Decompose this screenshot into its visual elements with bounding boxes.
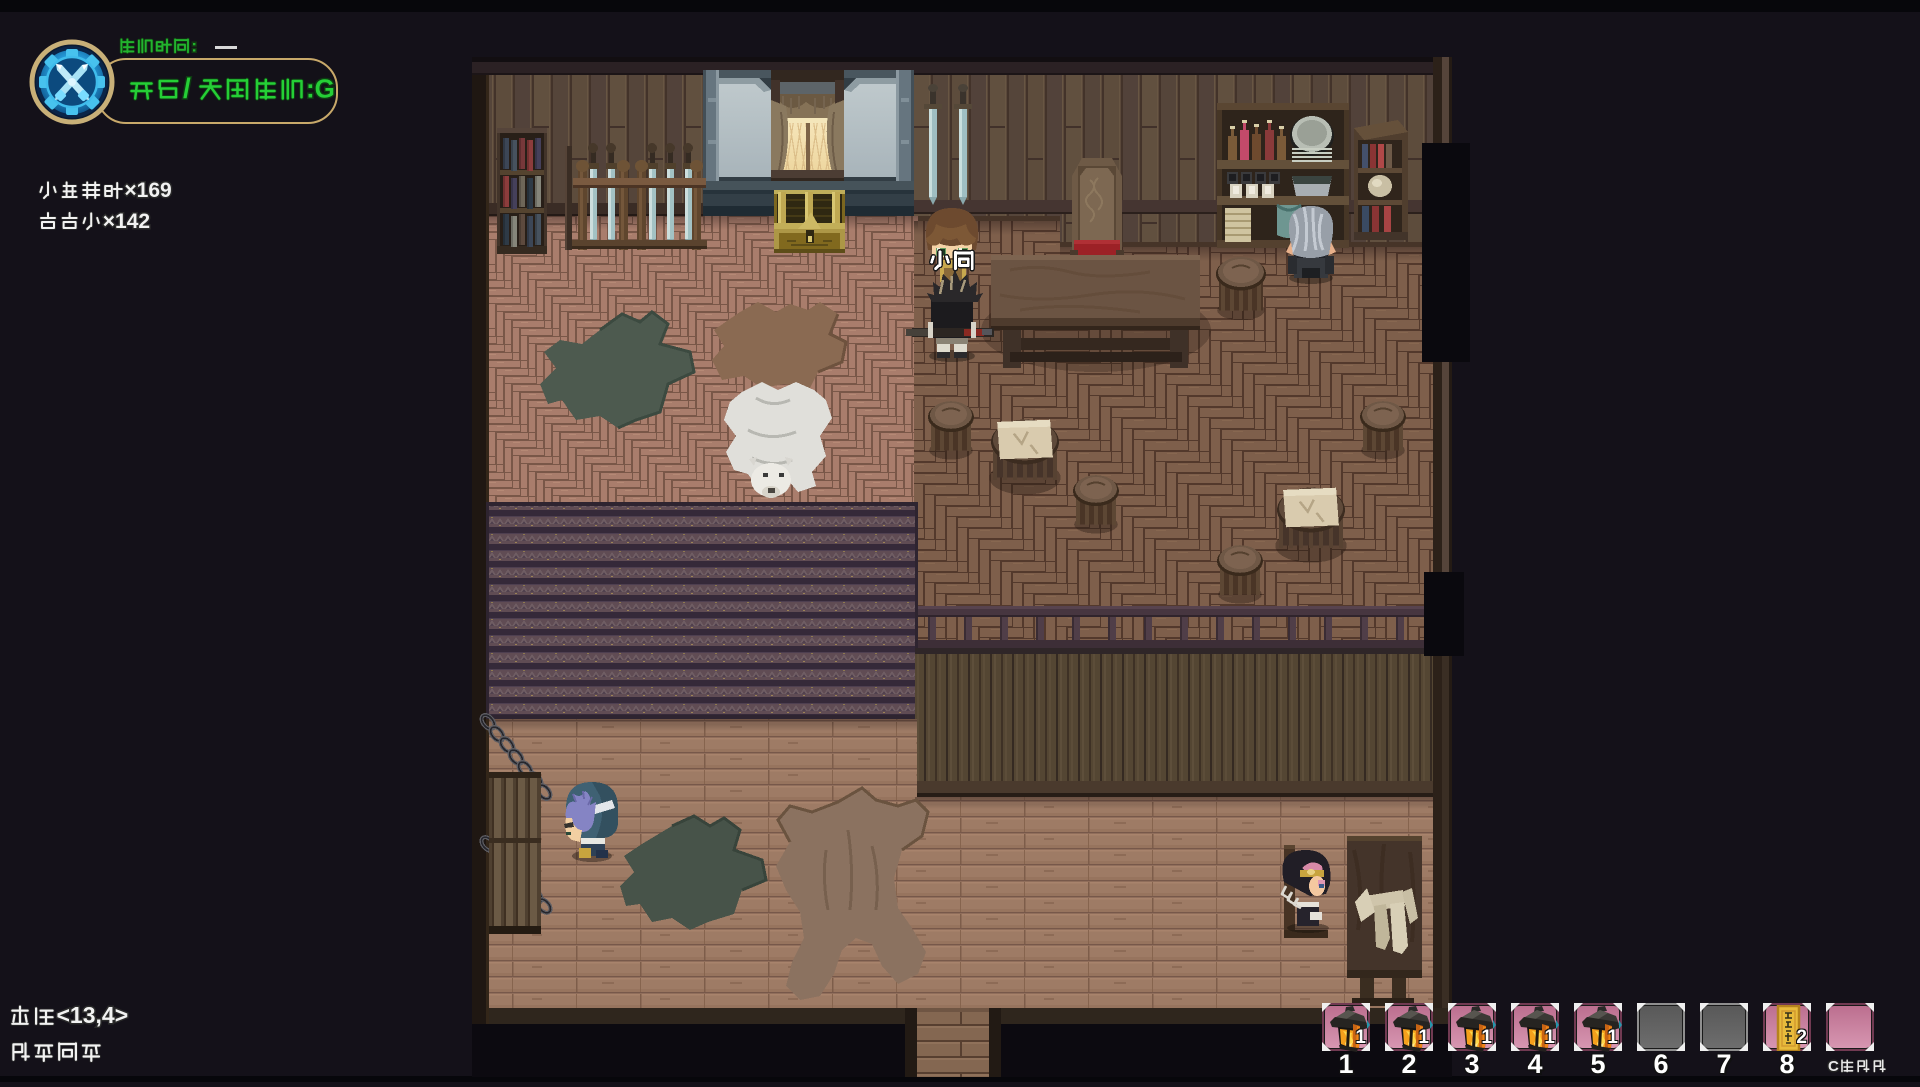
svg-text::: : <box>191 37 197 56</box>
svg-text:<13,4>: <13,4> <box>57 1002 129 1028</box>
svg-text::G: :G <box>306 74 335 104</box>
svg-text:C: C <box>1828 1058 1839 1075</box>
svg-text:/: / <box>183 73 191 104</box>
svg-text:×142: ×142 <box>103 210 150 233</box>
svg-text:×169: ×169 <box>124 179 171 202</box>
